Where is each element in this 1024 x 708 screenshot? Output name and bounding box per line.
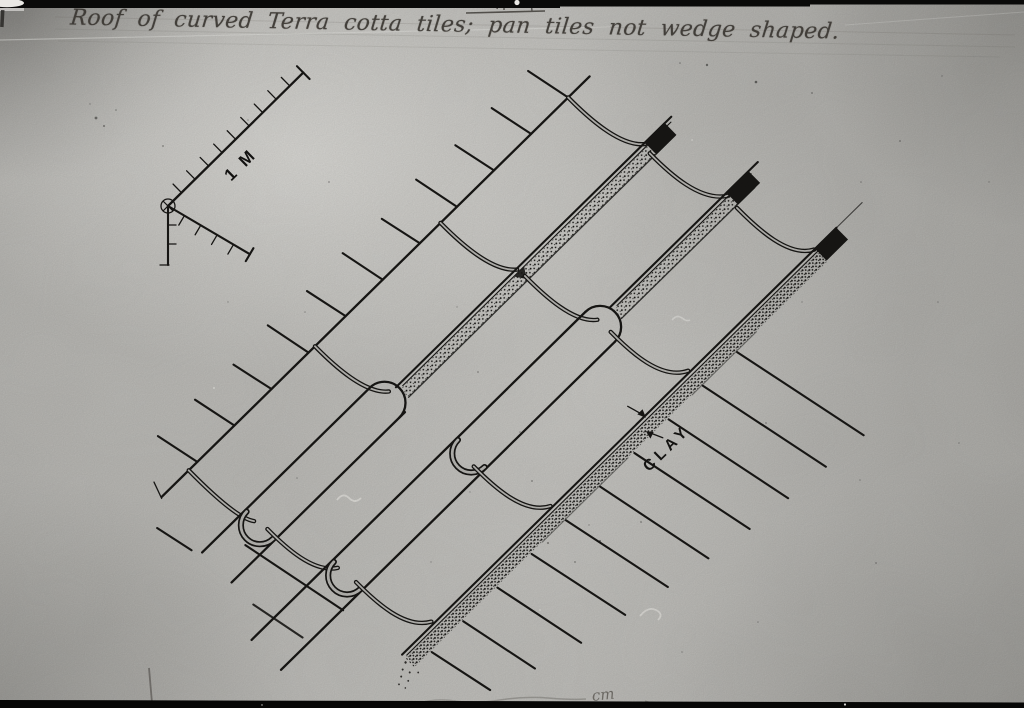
film-grain-overlay (0, 0, 1024, 708)
archival-drawing-canvas: CLAY 1 M (0, 0, 1024, 708)
scanned-photograph: CLAY 1 M (0, 0, 1024, 708)
